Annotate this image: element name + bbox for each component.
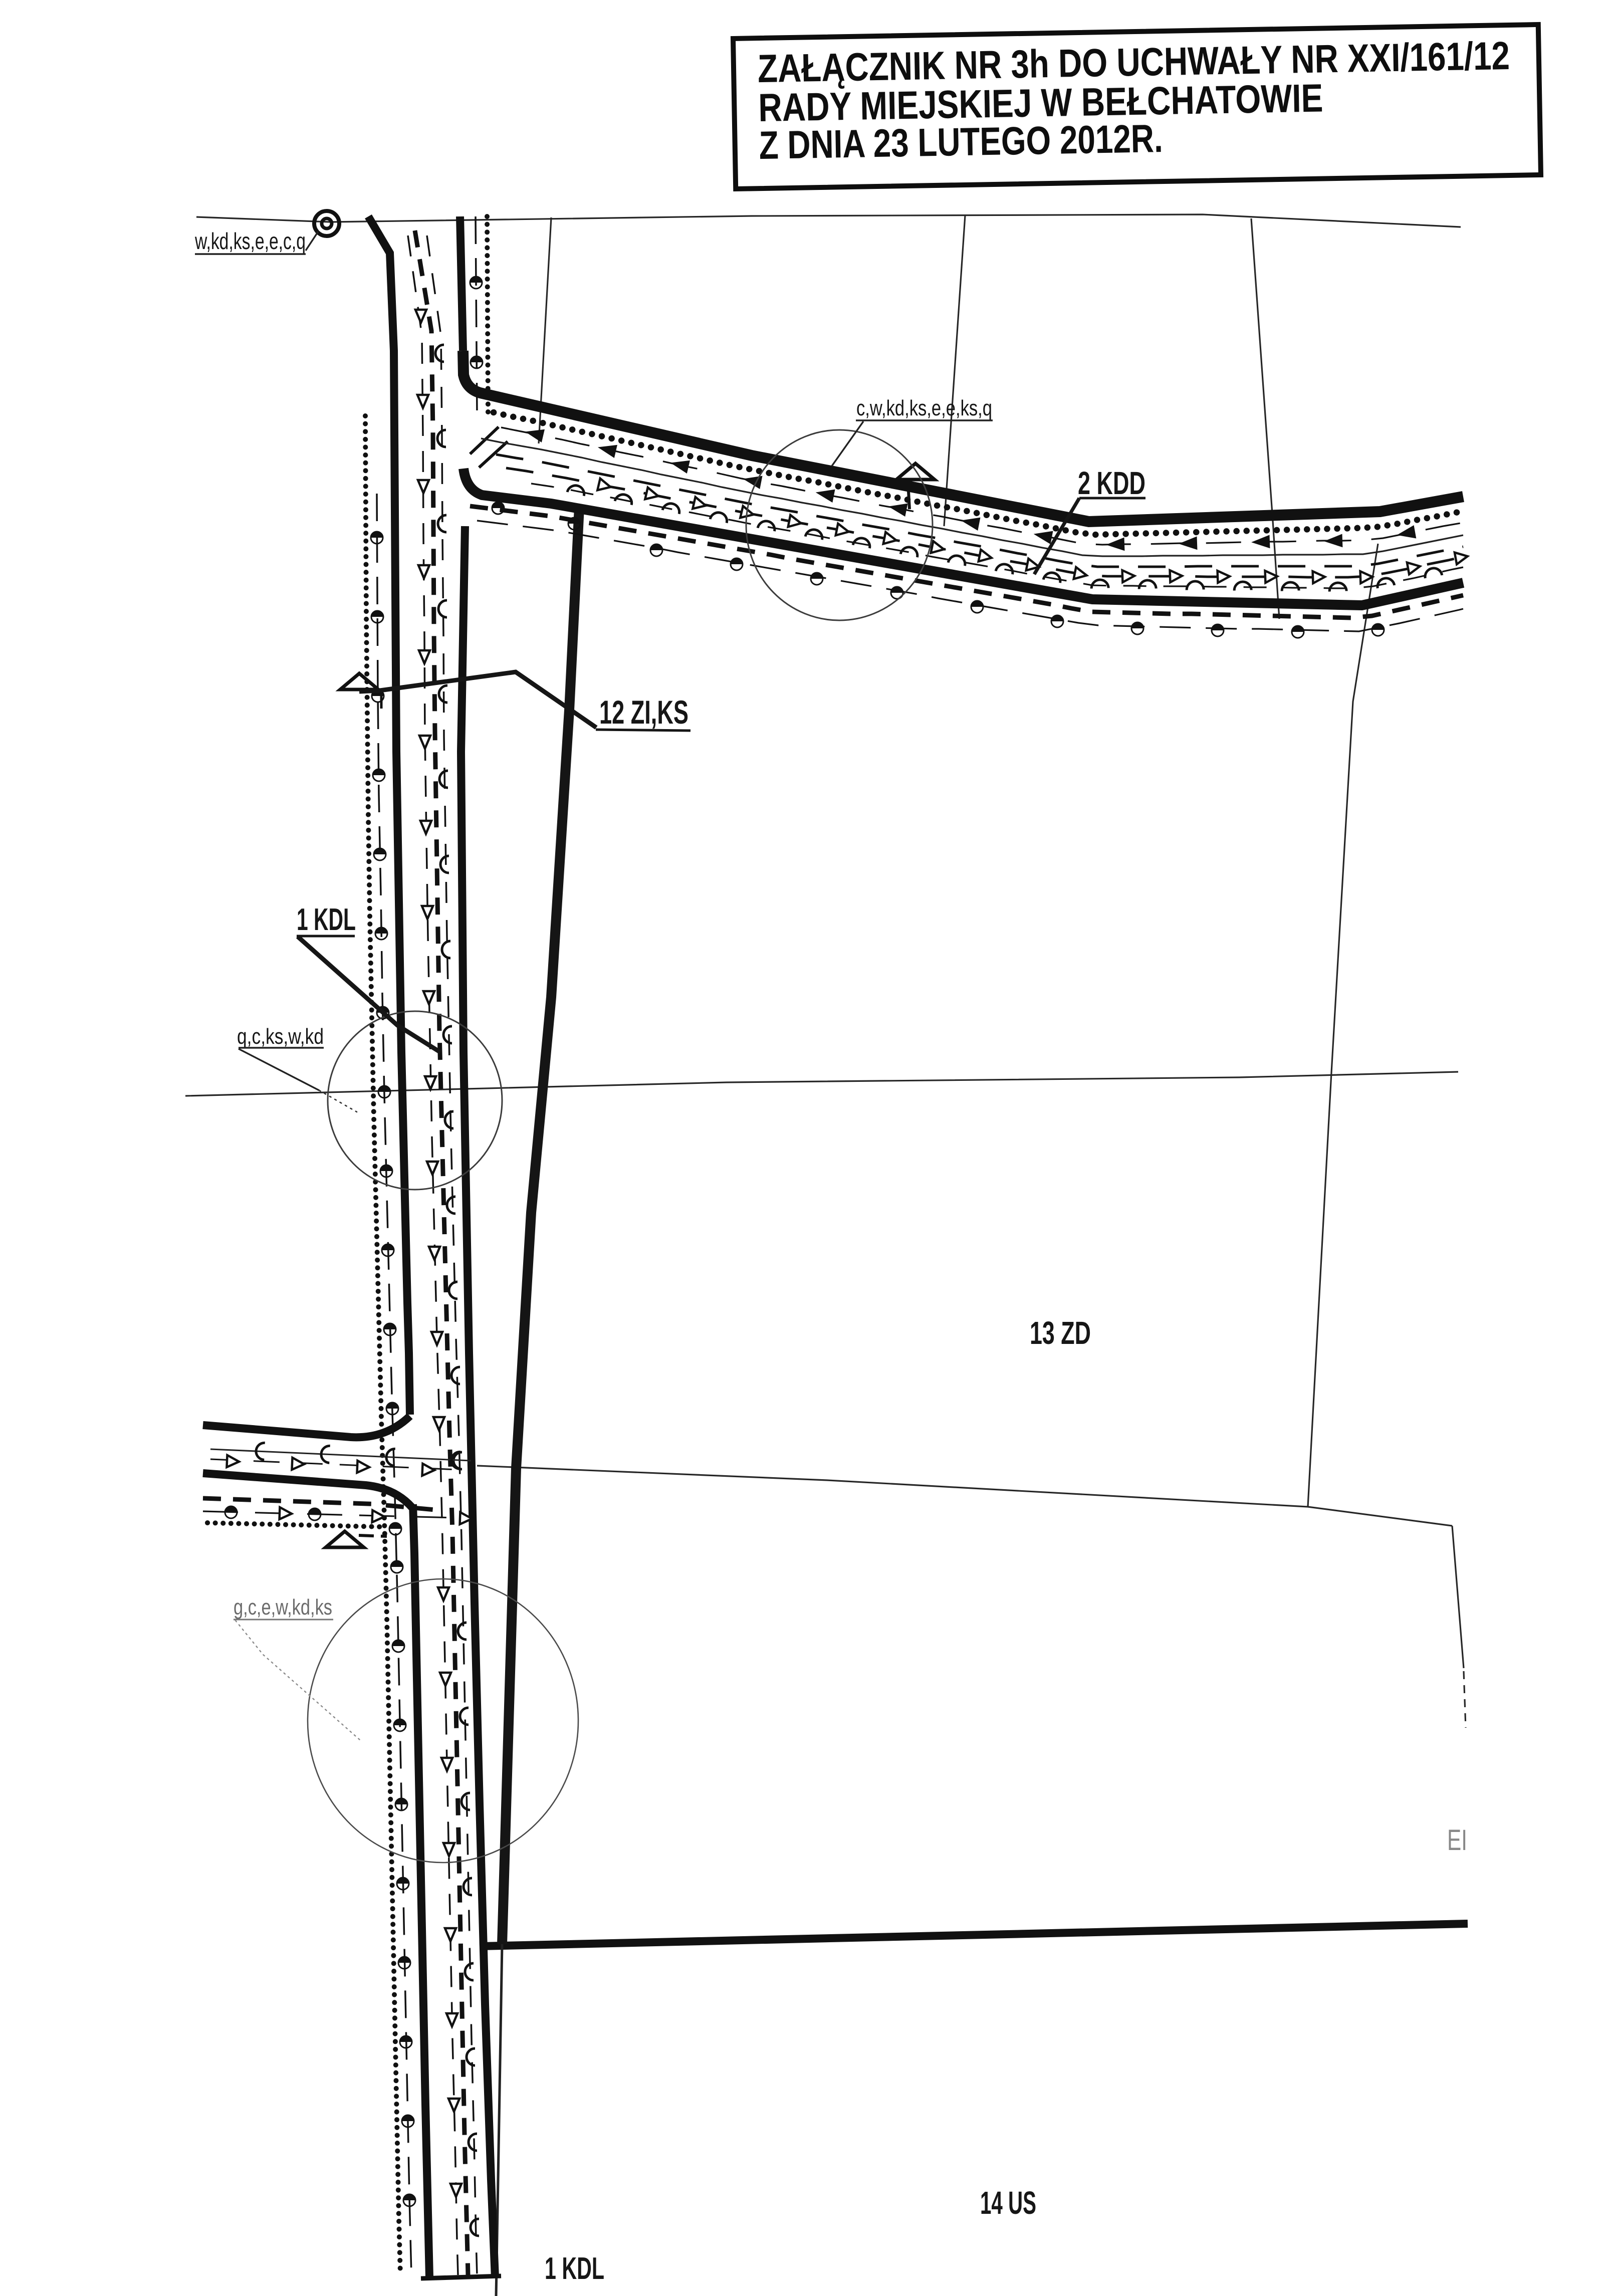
svg-text:14 US: 14 US xyxy=(980,2185,1036,2221)
svg-text:1 KDL: 1 KDL xyxy=(545,2251,604,2286)
svg-text:g,c,e,w,kd,ks: g,c,e,w,kd,ks xyxy=(234,1595,332,1620)
svg-text:13 ZD: 13 ZD xyxy=(1030,1315,1091,1351)
svg-text:q,c,ks,w,kd: q,c,ks,w,kd xyxy=(237,1024,324,1049)
svg-text:12 ZI,KS: 12 ZI,KS xyxy=(599,694,688,731)
svg-text:Z DNIA 23 LUTEGO 2012R.: Z DNIA 23 LUTEGO 2012R. xyxy=(759,116,1163,167)
svg-text:EI: EI xyxy=(1447,1824,1467,1857)
svg-text:w,kd,ks,e,e,c,q: w,kd,ks,e,e,c,q xyxy=(194,228,306,254)
svg-text:2 KDD: 2 KDD xyxy=(1078,465,1145,501)
svg-text:1 KDL: 1 KDL xyxy=(297,902,356,937)
svg-text:c,w,kd,ks,e,e,ks,q: c,w,kd,ks,e,e,ks,q xyxy=(856,396,992,420)
